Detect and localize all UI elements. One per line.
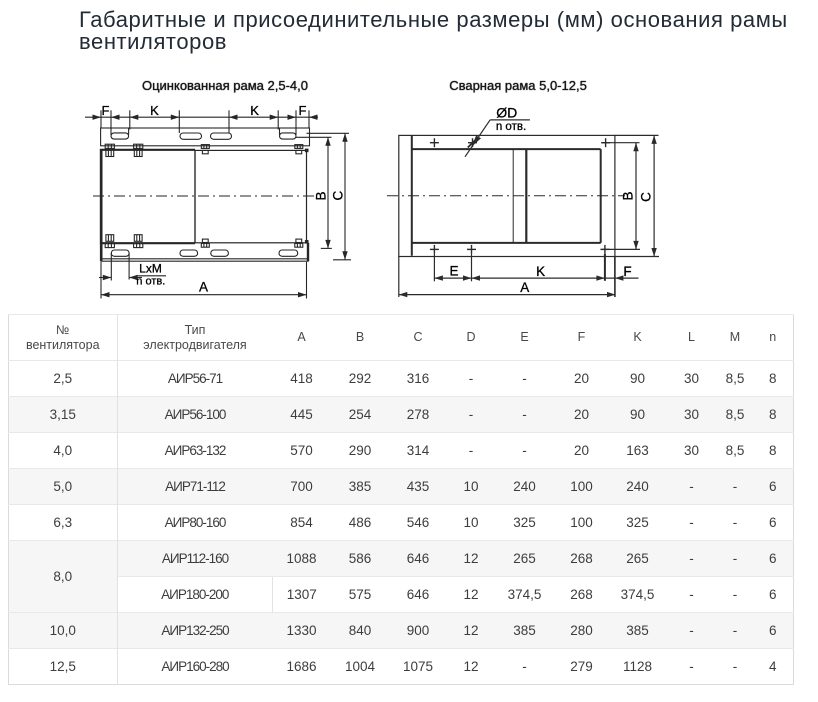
svg-text:K: K: [150, 103, 159, 118]
svg-text:F: F: [623, 264, 631, 279]
svg-text:F: F: [299, 103, 307, 118]
svg-text:K: K: [250, 103, 259, 118]
svg-text:LxM: LxM: [139, 262, 162, 276]
svg-text:E: E: [449, 264, 458, 279]
svg-text:n отв.: n отв.: [136, 276, 165, 288]
svg-text:n отв.: n отв.: [496, 121, 526, 133]
svg-text:A: A: [199, 279, 208, 294]
svg-text:C: C: [639, 192, 654, 202]
svg-text:K: K: [536, 264, 545, 279]
svg-text:B: B: [621, 191, 636, 200]
svg-text:F: F: [102, 103, 110, 118]
svg-text:B: B: [314, 191, 329, 200]
svg-text:C: C: [331, 190, 346, 200]
svg-text:A: A: [520, 280, 529, 295]
svg-text:ØD: ØD: [496, 104, 517, 120]
